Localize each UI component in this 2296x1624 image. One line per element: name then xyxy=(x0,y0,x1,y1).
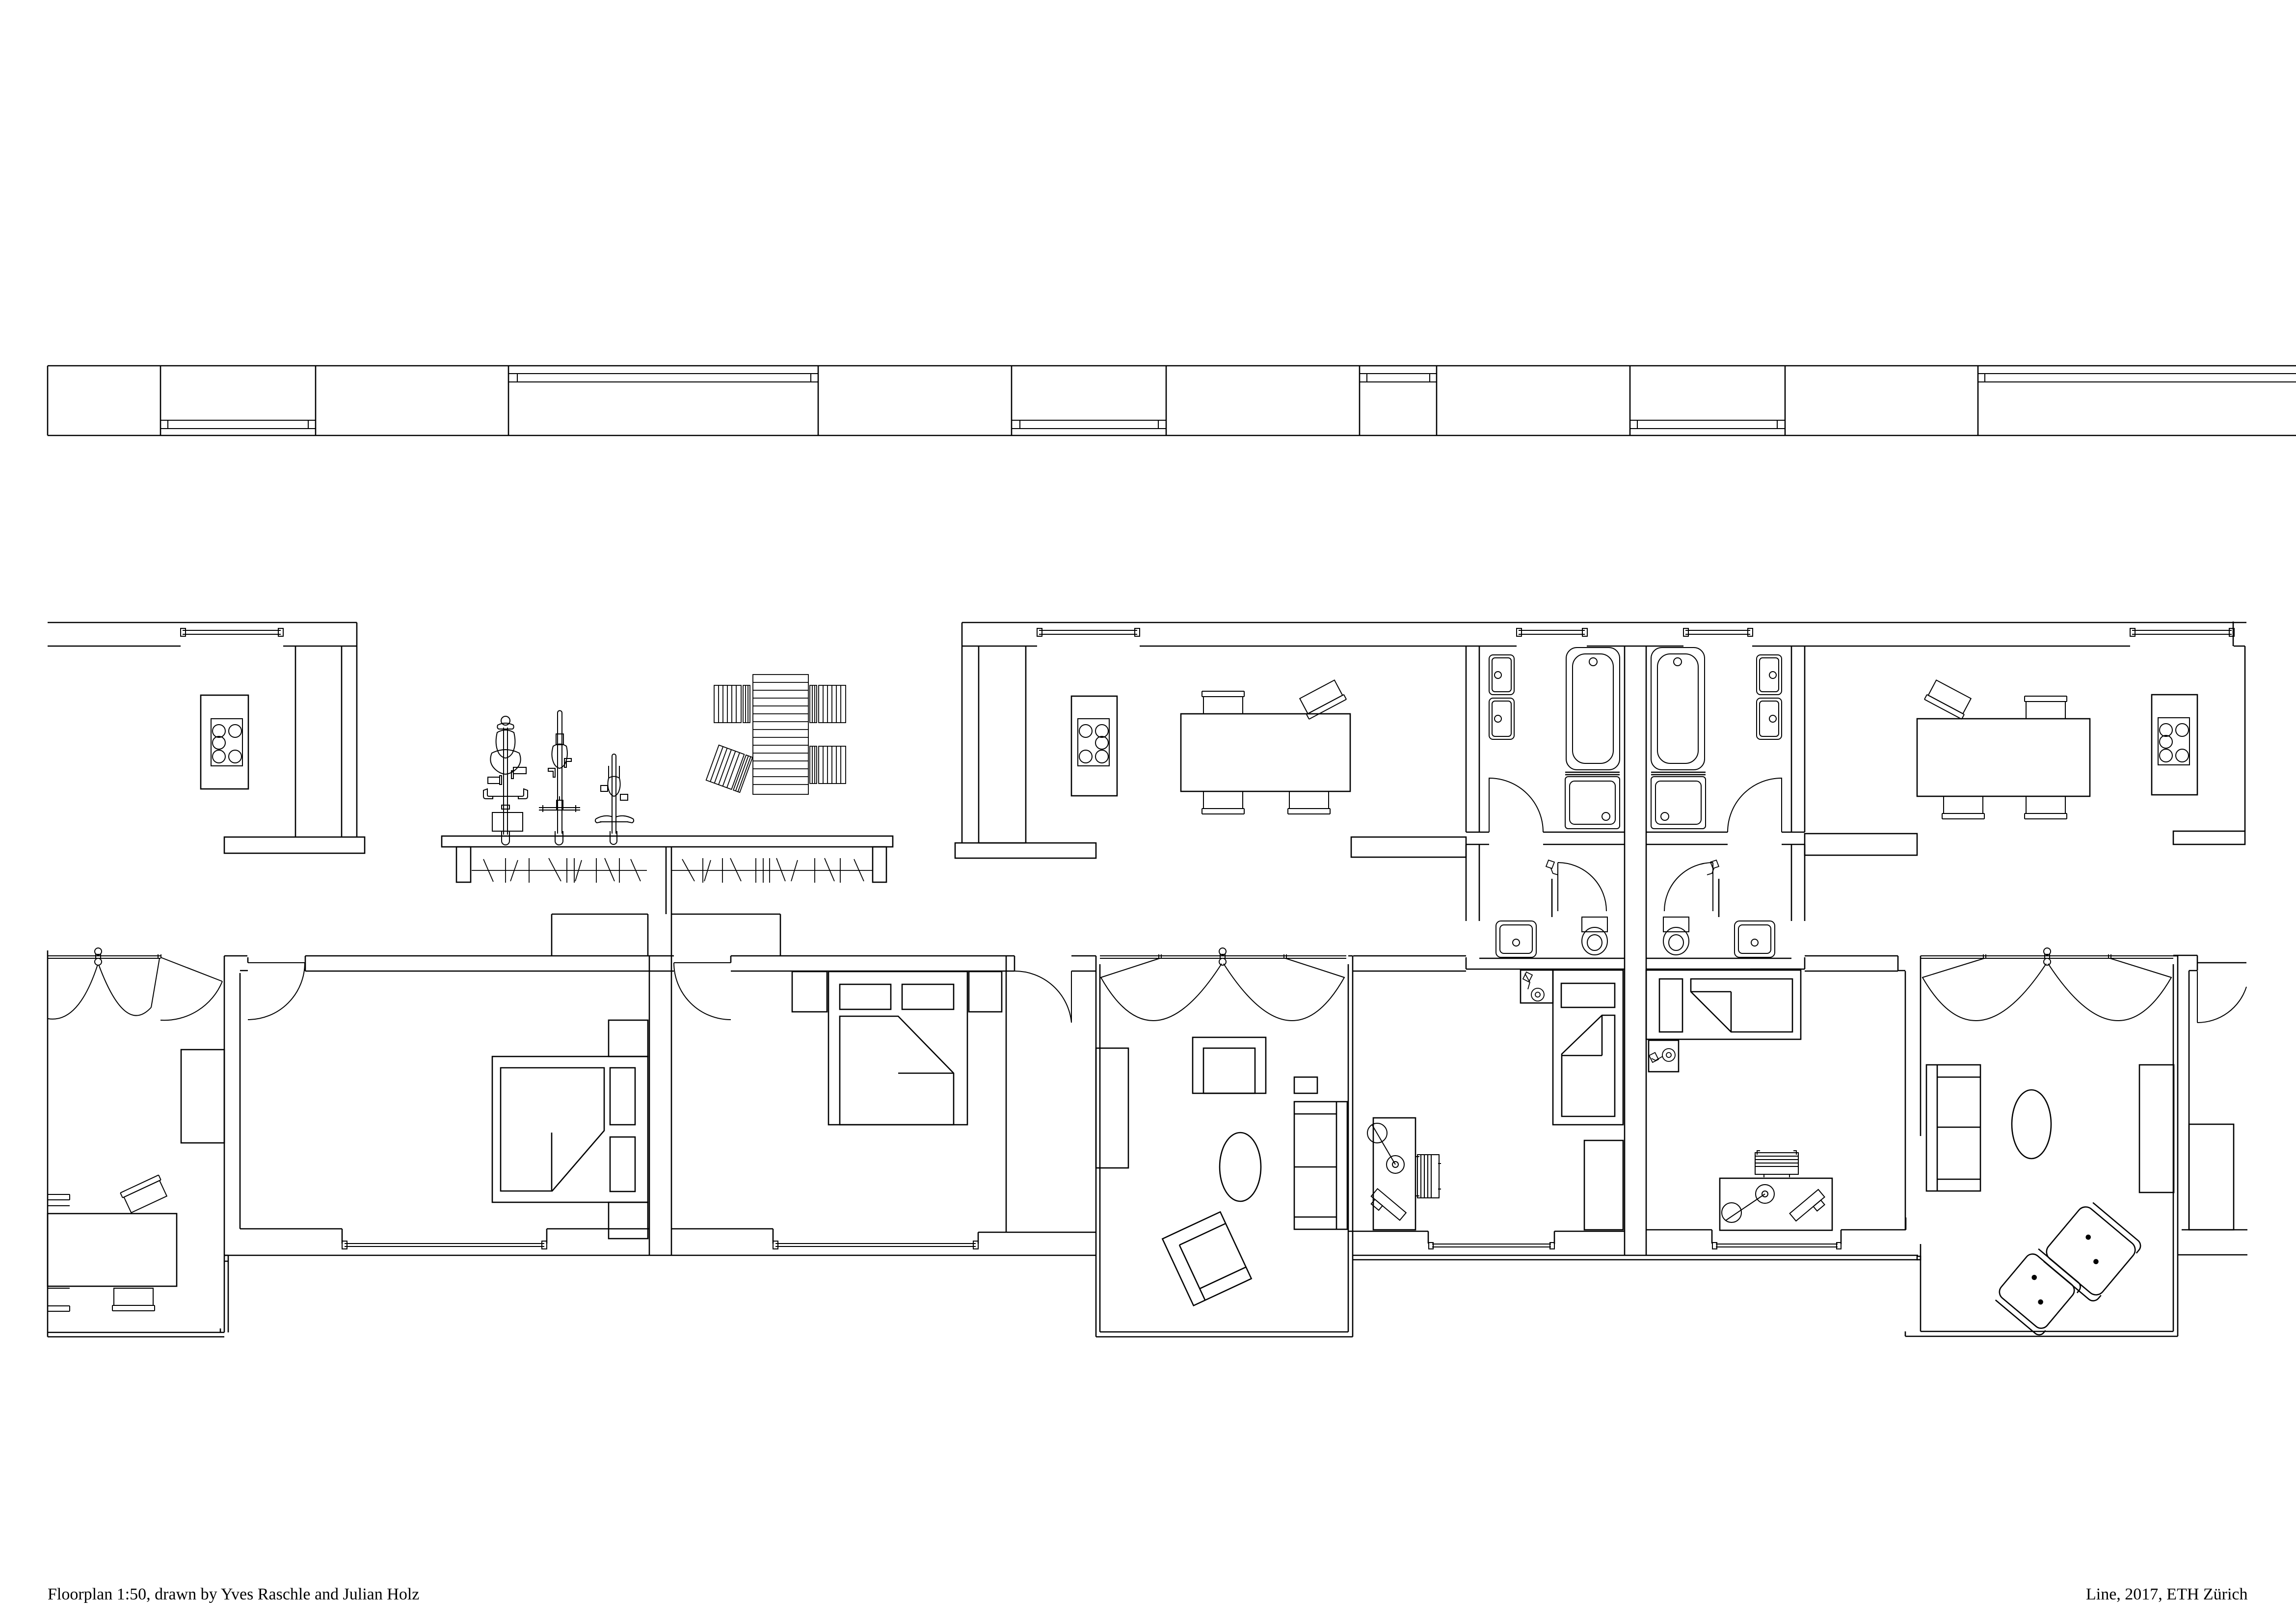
svg-text:Floorplan 1:50, drawn by Yves: Floorplan 1:50, drawn by Yves Raschle an… xyxy=(48,1585,419,1603)
svg-text:Line, 2017, ETH Zürich: Line, 2017, ETH Zürich xyxy=(2086,1585,2248,1603)
